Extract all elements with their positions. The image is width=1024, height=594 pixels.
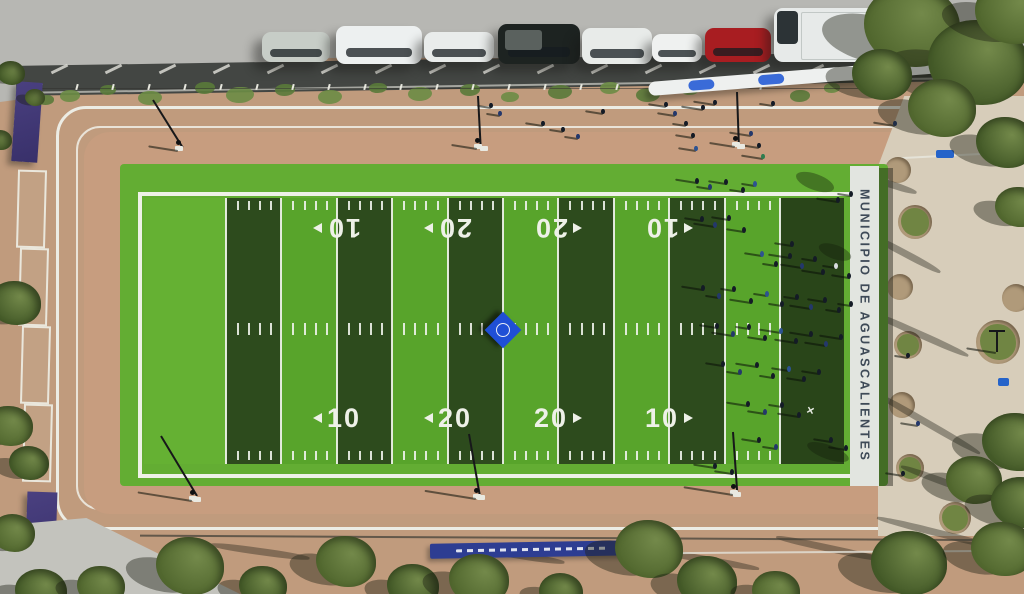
yard-number-20: 20 [413,402,483,434]
tree-canopy [0,61,25,85]
path-pad [480,146,488,151]
person [724,179,728,185]
person [849,191,853,197]
hash-tick [270,323,272,335]
yard-line [225,198,227,464]
hash-tick [647,323,649,335]
hash-tick [481,451,483,460]
hash-tick [569,323,571,335]
hash-tick [425,201,427,210]
hash-tick [769,323,771,335]
person [813,256,817,262]
yard-arrow [684,223,693,233]
hash-tick [414,201,416,210]
endzone-left [144,198,226,464]
yard-arrow [573,223,582,233]
tree-canopy [871,531,947,594]
hash-tick [581,201,583,210]
hash-tick [348,201,350,210]
hash-tick [381,201,383,210]
hash-tick [747,451,749,460]
hash-tick [237,451,239,460]
hash-tick [414,451,416,460]
lamp-fixture [474,488,479,493]
tree-canopy [156,537,224,594]
person [774,444,778,450]
person [760,251,764,257]
hash-tick [736,323,738,335]
hash-tick [603,323,605,335]
path-pad [737,144,745,149]
hash-tick [514,451,516,460]
person [829,437,833,443]
person [824,341,828,347]
person [601,109,605,114]
person [795,294,799,300]
hash-tick [691,201,693,210]
midfield-logo-ring [493,320,513,340]
yard-line [724,198,726,464]
person [747,324,751,330]
person [757,437,761,443]
municipio-band-label: MUNICIPIO DE AGUASCALIENTES [858,189,872,462]
lamp-fixture [733,136,738,141]
hash-tick [237,323,239,335]
person [847,273,851,279]
hash-tick [769,451,771,460]
hash-tick [370,323,372,335]
hash-tick [592,323,594,335]
lamp-fixture [190,490,195,495]
person [576,134,580,139]
hash-tick [625,451,627,460]
person [771,101,775,106]
hash-tick [437,323,439,335]
hash-tick [680,323,682,335]
hash-tick [437,451,439,460]
hash-tick [425,451,427,460]
yard-line [280,198,282,464]
hash-tick [270,201,272,210]
person [700,216,704,222]
hash-tick [569,201,571,210]
yard-number-20: 20 [523,402,593,434]
tree-canopy [316,536,376,587]
person [761,154,765,159]
person [817,369,821,375]
hash-tick [237,201,239,210]
hash-tick [769,201,771,210]
hash-tick [636,201,638,210]
hash-tick [647,451,649,460]
hash-tick [481,201,483,210]
hash-tick [702,201,704,210]
person [561,127,565,132]
hash-tick [359,323,361,335]
tree-canopy [25,89,45,106]
hash-tick [315,201,317,210]
hash-tick [304,451,306,460]
person [809,331,813,337]
person [753,181,757,187]
hash-tick [381,323,383,335]
hash-tick [514,201,516,210]
hash-tick [547,323,549,335]
hash-tick [381,451,383,460]
person [780,402,784,408]
lamp-fixture [176,140,181,145]
hash-tick [304,323,306,335]
person [771,373,775,379]
hash-tick [547,451,549,460]
hash-tick [437,201,439,210]
yard-number-label: 20 [534,405,568,432]
person [732,286,736,292]
hash-tick [691,323,693,335]
yard-number-10: 10 [634,212,704,244]
hash-tick [359,451,361,460]
hash-tick [536,201,538,210]
hash-tick [348,323,350,335]
person [837,307,841,313]
yard-arrow [313,223,322,233]
hash-tick [326,323,328,335]
hash-tick [259,451,261,460]
hash-tick [714,201,716,210]
hash-tick [248,451,250,460]
banner-frame-panel [20,326,51,405]
person [730,469,734,475]
hash-tick [569,451,571,460]
person [713,100,717,105]
path-pad [193,497,201,502]
hash-tick [248,201,250,210]
person [823,297,827,303]
person [787,366,791,372]
person [788,253,792,259]
hash-tick [758,201,760,210]
hash-tick [459,201,461,210]
hash-tick [680,451,682,460]
hash-tick [403,323,405,335]
hash-tick [248,323,250,335]
person [701,285,705,291]
hash-tick [270,451,272,460]
hash-tick [603,201,605,210]
hash-tick [292,201,294,210]
yard-number-10: 10 [634,402,704,434]
person [695,178,699,184]
hash-tick [736,451,738,460]
hash-tick [425,323,427,335]
hash-tick [292,451,294,460]
yard-number-10: 10 [302,402,372,434]
person [763,409,767,415]
person [844,445,848,451]
path-pad [733,492,741,497]
hash-tick [625,323,627,335]
hash-tick [470,323,472,335]
yard-arrow [424,413,433,423]
hash-tick [259,201,261,210]
hash-tick [470,201,472,210]
lamp-fixture [731,484,736,489]
hash-tick [481,323,483,335]
yard-number-label: 20 [438,405,472,432]
person [694,146,698,151]
person [755,362,759,368]
yard-line [613,198,615,464]
person [541,121,545,126]
person [779,328,783,334]
person [839,334,843,340]
hash-tick [636,323,638,335]
person [489,103,493,108]
hash-tick [359,201,361,210]
person [717,293,721,299]
hash-tick [414,323,416,335]
yard-line [391,198,393,464]
hash-tick [315,451,317,460]
hash-tick [658,451,660,460]
hash-tick [304,201,306,210]
yard-number-20: 20 [523,212,593,244]
yard-arrow [424,223,433,233]
yard-number-label: 10 [645,215,679,242]
person [834,263,838,269]
hash-tick [581,451,583,460]
hash-tick [658,201,660,210]
hash-tick [747,201,749,210]
hash-tick [459,451,461,460]
person [821,269,825,275]
hash-tick [525,201,527,210]
hash-tick [492,451,494,460]
hash-tick [702,451,704,460]
hash-tick [492,201,494,210]
tree-canopy [908,79,976,137]
hash-tick [315,323,317,335]
hash-tick [459,323,461,335]
yard-number-label: 10 [327,405,361,432]
person [809,304,813,310]
person [906,353,910,358]
hash-tick [758,451,760,460]
hash-tick [536,323,538,335]
person [727,215,731,221]
person [741,187,745,193]
field-stripe-dark [226,198,282,464]
person [721,361,725,367]
yard-number-label: 20 [438,215,472,242]
person [916,421,920,426]
person [765,291,769,297]
person [673,111,677,116]
person [849,301,853,307]
hash-tick [736,201,738,210]
person [742,227,746,233]
person [713,222,717,228]
person [691,133,695,138]
person [802,376,806,382]
person [757,143,761,148]
person [794,338,798,344]
person [800,263,804,269]
yard-arrow [573,413,582,423]
yard-number-label: 10 [645,405,679,432]
hash-tick [636,451,638,460]
person [749,298,753,304]
person [498,111,502,116]
person [713,463,717,469]
hash-tick [647,201,649,210]
hash-tick [625,201,627,210]
person [731,331,735,337]
lamp-fixture [475,138,480,143]
person [708,184,712,190]
hash-tick [292,323,294,335]
hash-tick [370,451,372,460]
hash-tick [259,323,261,335]
yard-number-label: 20 [534,215,568,242]
tree-canopy [615,520,683,578]
person [797,412,801,418]
person [701,105,705,110]
person [684,121,688,126]
hash-tick [658,323,660,335]
yard-number-label: 10 [327,215,361,242]
person [664,102,668,107]
hash-tick [525,451,527,460]
yard-number-10: 10 [302,212,372,244]
hash-tick [603,451,605,460]
person [763,335,767,341]
person [746,401,750,407]
hash-tick [348,451,350,460]
person [715,323,719,329]
yard-arrow [313,413,322,423]
hash-tick [525,323,527,335]
yard-arrow [684,413,693,423]
municipio-band: MUNICIPIO DE AGUASCALIENTES [850,166,879,486]
hash-tick [581,323,583,335]
person [901,471,905,476]
hash-tick [536,451,538,460]
hash-tick [326,201,328,210]
hash-tick [403,451,405,460]
hash-tick [691,451,693,460]
person [836,197,840,203]
aerial-photo-scene: 1020201010202010✕ MUNICIPIO DE AGUASCALI… [0,0,1024,594]
hash-tick [547,201,549,210]
hash-tick [680,201,682,210]
person [790,241,794,247]
hash-tick [592,451,594,460]
hash-tick [403,201,405,210]
hash-tick [326,451,328,460]
hash-tick [370,201,372,210]
person [738,369,742,375]
tree-canopy [852,49,912,100]
tree-canopy [9,446,49,480]
hash-tick [592,201,594,210]
hash-tick [714,451,716,460]
person [780,301,784,307]
person [774,261,778,267]
path-pad [477,495,485,500]
yard-number-20: 20 [413,212,483,244]
person [749,131,753,136]
banner-frame-panel [16,170,47,249]
